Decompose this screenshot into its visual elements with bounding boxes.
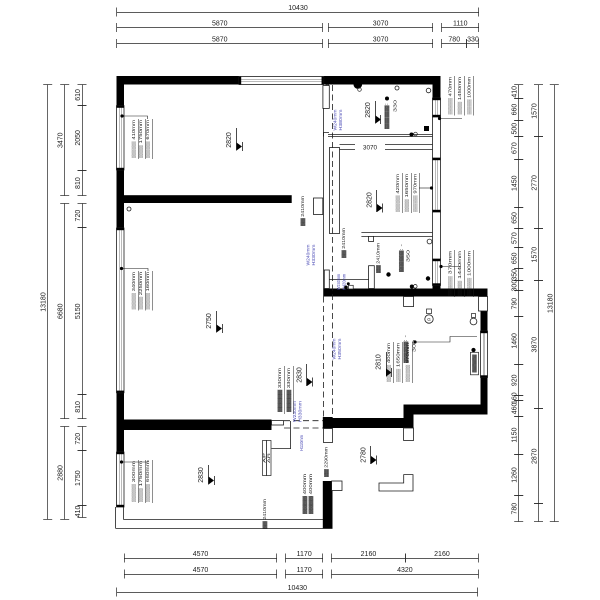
svg-text:W240mm: W240mm (306, 244, 311, 265)
svg-text:3070: 3070 (363, 145, 378, 152)
svg-text:2770: 2770 (532, 175, 539, 191)
svg-text:13180: 13180 (41, 292, 48, 312)
svg-text:1110: 1110 (453, 21, 468, 28)
svg-text:720: 720 (75, 210, 82, 222)
svg-text:300: 300 (512, 280, 519, 292)
svg-text:▒▒▒▒ 400mm: ▒▒▒▒ 400mm (386, 342, 391, 382)
svg-text:▒▒▒ 1750mm: ▒▒▒ 1750mm (138, 119, 143, 158)
svg-text:570: 570 (512, 232, 519, 244)
svg-text:780: 780 (448, 37, 460, 44)
svg-text:2870: 2870 (532, 448, 539, 464)
svg-text:5150: 5150 (75, 303, 82, 319)
svg-text:3070: 3070 (373, 37, 389, 44)
svg-text:W240mm: W240mm (332, 338, 337, 359)
svg-text:▒▒▒▒ 470mm: ▒▒▒▒ 470mm (448, 76, 453, 114)
svg-text:6680: 6680 (58, 303, 65, 319)
svg-text:5870: 5870 (212, 21, 228, 28)
svg-text:H350mm: H350mm (337, 338, 342, 359)
svg-text:H330mm: H330mm (311, 244, 316, 265)
svg-text:▒▒▒▒ 300mm: ▒▒▒▒ 300mm (131, 460, 136, 502)
svg-text:1150: 1150 (512, 427, 519, 442)
svg-text:▒▒▒▒ 340mm: ▒▒▒▒ 340mm (131, 271, 136, 309)
svg-text:▒▒▒▒ 970mm: ▒▒▒▒ 970mm (413, 173, 418, 212)
svg-text:3470: 3470 (58, 132, 65, 148)
svg-text:H330mm: H330mm (298, 401, 303, 422)
svg-text:▒▒▒▒ 660mm: ▒▒▒▒ 660mm (145, 460, 150, 502)
svg-text:1170: 1170 (297, 551, 312, 558)
svg-text:▒▒▒ 1750mm: ▒▒▒ 1750mm (138, 460, 143, 502)
svg-text:780: 780 (512, 503, 519, 515)
svg-text:G: G (427, 317, 431, 322)
svg-text:350: 350 (406, 249, 411, 262)
svg-text:410: 410 (512, 86, 519, 98)
svg-text:4570: 4570 (193, 567, 209, 574)
svg-text:▒▒▒▒ 410mm: ▒▒▒▒ 410mm (131, 119, 136, 158)
svg-text:4570: 4570 (193, 551, 209, 558)
svg-text:330: 330 (467, 37, 479, 44)
svg-text:2820: 2820 (367, 192, 374, 208)
svg-text:2160: 2160 (434, 551, 450, 558)
svg-text:670: 670 (512, 142, 519, 154)
svg-text:300: 300 (412, 339, 417, 352)
svg-text:3870: 3870 (532, 337, 539, 353)
svg-text:350: 350 (512, 269, 519, 281)
svg-text:650: 650 (512, 252, 519, 264)
svg-text:2160: 2160 (361, 551, 377, 558)
svg-text:10430: 10430 (288, 585, 308, 592)
svg-text:920: 920 (512, 374, 519, 386)
svg-text:▒▒▒▒ 420mm: ▒▒▒▒ 420mm (395, 173, 400, 212)
svg-text:2750: 2750 (206, 313, 213, 329)
svg-text:160: 160 (512, 392, 519, 404)
svg-text:2780: 2780 (361, 447, 368, 463)
svg-text:▒▒▒▒ 1000mm: ▒▒▒▒ 1000mm (467, 250, 472, 296)
svg-text:3070: 3070 (373, 21, 389, 28)
svg-text:13180: 13180 (547, 293, 554, 313)
svg-text:1460: 1460 (512, 333, 519, 349)
svg-text:660: 660 (512, 104, 519, 116)
svg-text:1570: 1570 (532, 103, 539, 119)
svg-text:▒▒▒▒ 1000mm: ▒▒▒▒ 1000mm (467, 76, 472, 114)
svg-text:▒▒▒ 1650mm: ▒▒▒ 1650mm (396, 342, 401, 382)
svg-text:2830: 2830 (198, 467, 205, 483)
svg-text:4320: 4320 (397, 567, 413, 574)
svg-text:▒▒▒ 1450mm: ▒▒▒ 1450mm (457, 76, 462, 114)
svg-text:▒▒▒ 1650mm: ▒▒▒ 1650mm (404, 173, 409, 212)
svg-text:H380mm: H380mm (338, 109, 343, 130)
svg-text:W230mm: W230mm (292, 401, 297, 422)
svg-text:1170: 1170 (297, 567, 312, 574)
svg-text:10430: 10430 (288, 5, 308, 12)
svg-text:1750: 1750 (75, 470, 82, 486)
svg-text:2810: 2810 (376, 354, 383, 370)
svg-text:610: 610 (75, 89, 82, 101)
svg-text:460: 460 (512, 402, 519, 414)
svg-text:650: 650 (512, 212, 519, 224)
svg-text:2880: 2880 (58, 465, 65, 481)
svg-text:AR: AR (266, 453, 271, 463)
svg-text:▒▒▒▒ 160mm: ▒▒▒▒ 160mm (145, 271, 150, 309)
svg-text:W240mm: W240mm (333, 109, 338, 130)
svg-text:W240mm: W240mm (336, 274, 341, 290)
svg-text:2820: 2820 (226, 132, 233, 148)
svg-text:410: 410 (75, 505, 82, 517)
svg-text:H110mm: H110mm (299, 435, 304, 451)
svg-text:2830: 2830 (297, 367, 304, 383)
svg-text:790: 790 (512, 298, 519, 310)
svg-text:1450: 1450 (512, 175, 519, 191)
svg-text:▒▒▒▒ 370mm: ▒▒▒▒ 370mm (448, 250, 453, 296)
svg-text:1570: 1570 (532, 247, 539, 263)
svg-text:810: 810 (75, 401, 82, 413)
svg-text:2050: 2050 (75, 130, 82, 146)
svg-text:▒▒▒ 1440mm: ▒▒▒ 1440mm (457, 250, 462, 296)
svg-text:720: 720 (75, 433, 82, 445)
svg-text:▒▒▒ 2250mm: ▒▒▒ 2250mm (138, 271, 143, 309)
svg-text:810: 810 (75, 177, 82, 189)
svg-text:2820: 2820 (365, 102, 372, 118)
svg-text:▒▒▒▒ 670mm: ▒▒▒▒ 670mm (145, 119, 150, 158)
svg-text:330: 330 (393, 99, 398, 112)
svg-text:500: 500 (512, 123, 519, 135)
svg-text:5870: 5870 (212, 37, 228, 44)
svg-text:1260: 1260 (512, 467, 519, 483)
